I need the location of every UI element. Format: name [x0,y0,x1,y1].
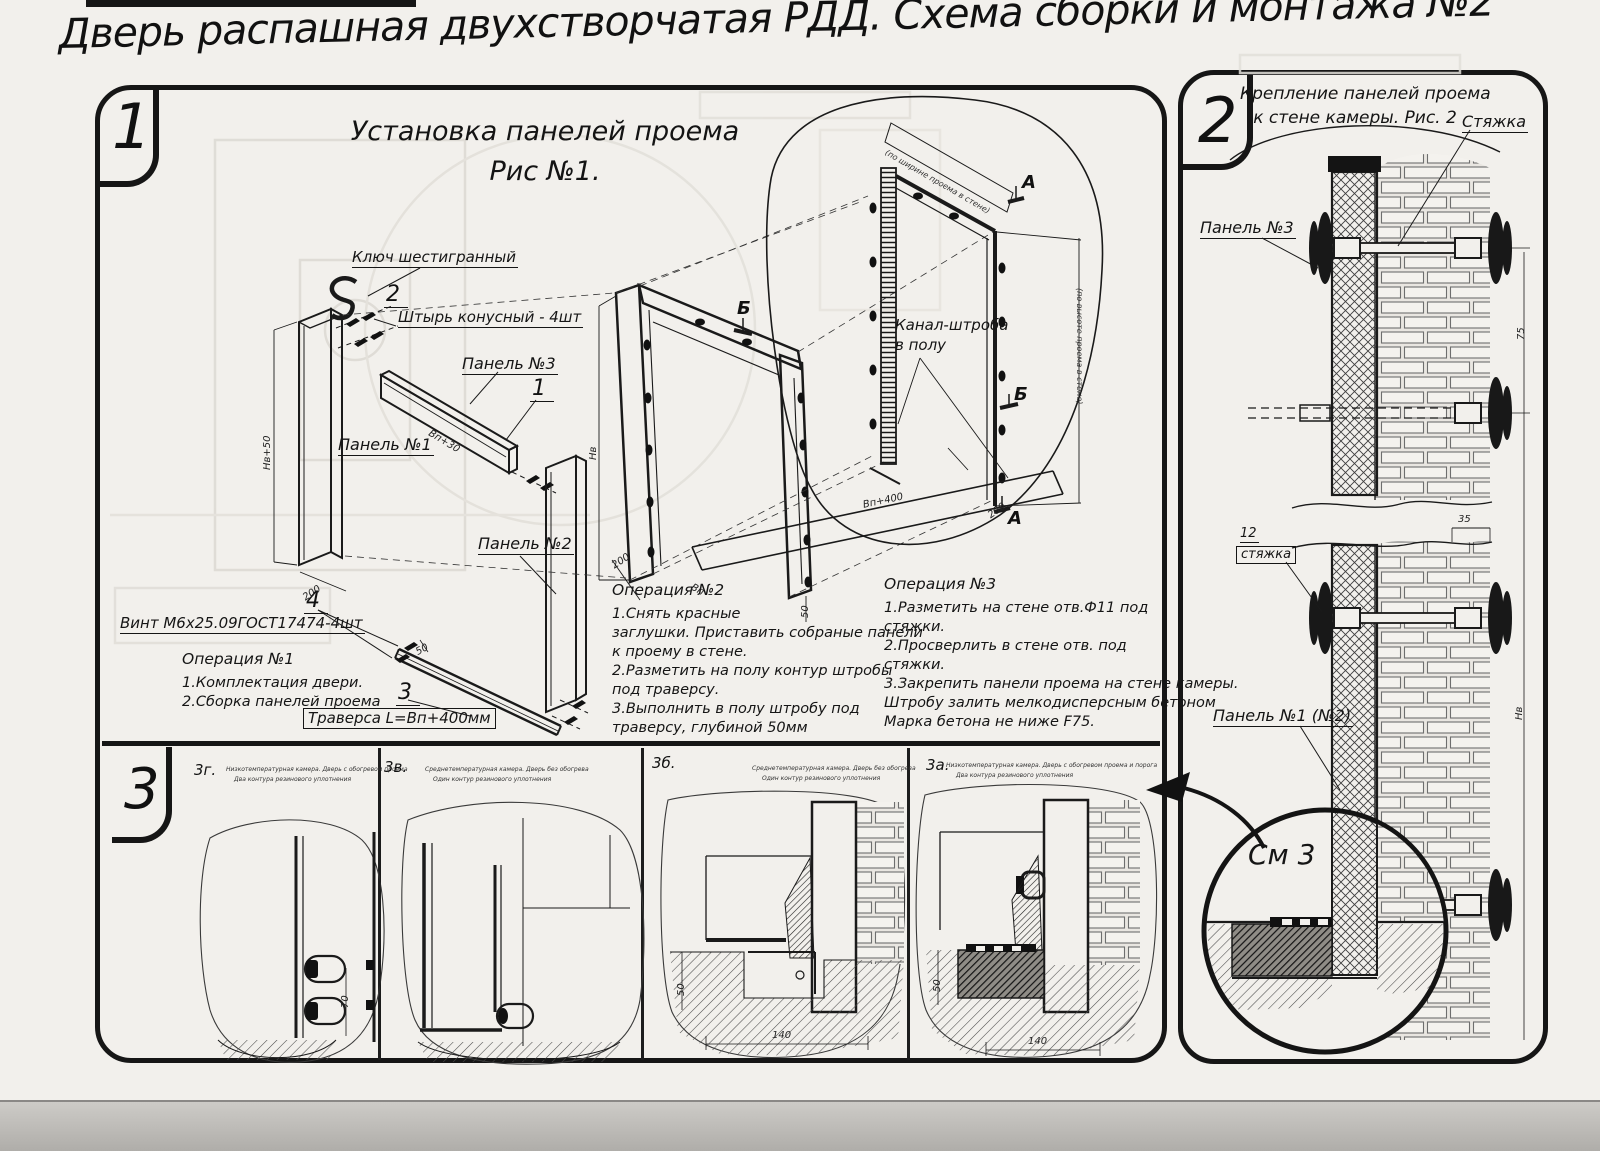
label-panel2: Панель №2 [478,534,574,555]
marker-a-top: А [1022,172,1036,193]
operation-3-line: стяжки. [884,656,1238,675]
fig2-title-1: Крепление панелей проема [1240,84,1470,104]
marker-b-left: Б [737,298,751,319]
label-see3: См 3 [1248,838,1315,871]
operation-2-line: 2.Разметить на полу контур штробы [612,662,923,681]
operation-1-line: 1.Комплектация двери. [182,674,381,693]
section1-badge: 1 [112,96,151,158]
fig-3a [916,785,1156,1058]
label-screw: Винт М6х25.09ГОСТ17474-4шт [120,614,365,634]
callout-2: 2 [384,282,408,308]
operation-2-line: траверсу, глубиной 50мм [612,719,923,738]
fig-3v-caption-1: Среднетемпературная камера. Дверь без об… [425,766,589,773]
operation-3-line: стяжки. [884,618,1238,637]
line-art [0,0,1600,1151]
operation-3-block: Операция №3 1.Разметить на стене отв.Ф11… [884,575,1238,732]
dim-50: 50 [800,605,811,618]
operation-2-line: под траверсу. [612,681,923,700]
operation-1-line: 2.Сборка панелей проема [182,693,381,712]
operation-3-line: 1.Разметить на стене отв.Ф11 под [884,599,1238,618]
label-tie: Стяжка [1462,112,1528,133]
operation-1-block: Операция №1 1.Комплектация двери. 2.Сбор… [182,650,381,712]
fig2-title-2: к стене камеры. Рис. 2 [1240,108,1470,128]
fig-3g-id: 3г. [194,761,216,779]
fig-3b-caption-2: Один контур резинового уплотнения [762,775,880,782]
fig1-subtitle: Рис №1. [330,156,760,187]
label-panel1: Панель №1 [338,435,434,456]
operation-1-title: Операция №1 [182,650,381,669]
dim-nv: Нв [588,447,599,460]
assembled-frame [599,196,993,622]
dim-nv50: Нв+50 [262,435,273,470]
label-item12-name: стяжка [1236,546,1296,564]
operation-2-block: Операция №2 1.Снять красные заглушки. Пр… [612,581,923,738]
dim-140b: 140 [1028,1036,1047,1047]
fig-3v [402,802,644,1064]
operation-3-line: 2.Просверлить в стене отв. под [884,637,1238,656]
operation-2-line: к проему в стене. [612,643,923,662]
operation-3-title: Операция №3 [884,575,1238,594]
fig-3g-caption-1: Низкотемпературная камера. Дверь с обогр… [226,766,408,773]
section2-badge: 2 [1198,90,1237,152]
operation-2-line: 3.Выполнить в полу штробу под [612,700,923,719]
dim-140: 140 [772,1030,791,1041]
operation-2-line: заглушки. Приставить собраные панели [612,624,923,643]
fig-3b-caption-1: Среднетемпературная камера. Дверь без об… [752,765,916,772]
marker-b-right: Б [1014,384,1028,405]
operation-3-line: Штробу залить мелкодисперсным бетоном [884,694,1238,713]
operation-3-line: 3.Закрепить панели проема на стене камер… [884,675,1238,694]
dim-50c: 50 [676,983,687,996]
fig1-title: Установка панелей проема [330,116,760,147]
fig-3v-caption-2: Один контур резинового уплотнения [433,776,551,783]
marker-a-bottom: А [1008,508,1022,529]
callout-1: 1 [530,376,554,402]
fig-3a-caption-2: Два контура резинового уплотнения [956,772,1073,779]
fig-3b [661,791,905,1057]
callout-3: 3 [396,680,420,706]
label-channel-1: Канал-штроба [895,316,1008,334]
label-panel3: Панель №3 [462,354,558,375]
drawing-sheet: Дверь распашная двухстворчатая РДД. Схем… [0,0,1600,1151]
fig-3b-id: 3б. [652,754,676,772]
fig-3v-id: 3в. [384,758,407,776]
fig-3g [200,820,384,1062]
dim-35: 35 [1458,514,1471,525]
dim-70: 70 [340,995,351,1008]
label-hex-key: Ключ шестигранный [352,248,518,268]
label-panel12: Панель №1 (№2) [1213,706,1353,727]
label-channel-2: в полу [895,336,946,354]
operation-2-line: 1.Снять красные [612,605,923,624]
section3-badge: 3 [124,762,160,818]
label-pin: Штырь конусный - 4шт [398,308,583,328]
operation-3-line: Марка бетона не ниже F75. [884,713,1238,732]
fig-3a-caption-1: Низкотемпературная камера. Дверь с обогр… [946,762,1157,769]
label-item12-number: 12 [1240,526,1259,543]
dim-height-note: (по высоте проема в стене) [1075,288,1084,404]
operation-2-title: Операция №2 [612,581,923,600]
label-s2-panel3: Панель №3 [1200,218,1296,239]
dim-50d: 50 [932,979,943,992]
fig-3g-caption-2: Два контура резинового уплотнения [234,776,351,783]
dim-75: 75 [1516,327,1527,340]
dim-nv2: Нв [1514,707,1525,720]
